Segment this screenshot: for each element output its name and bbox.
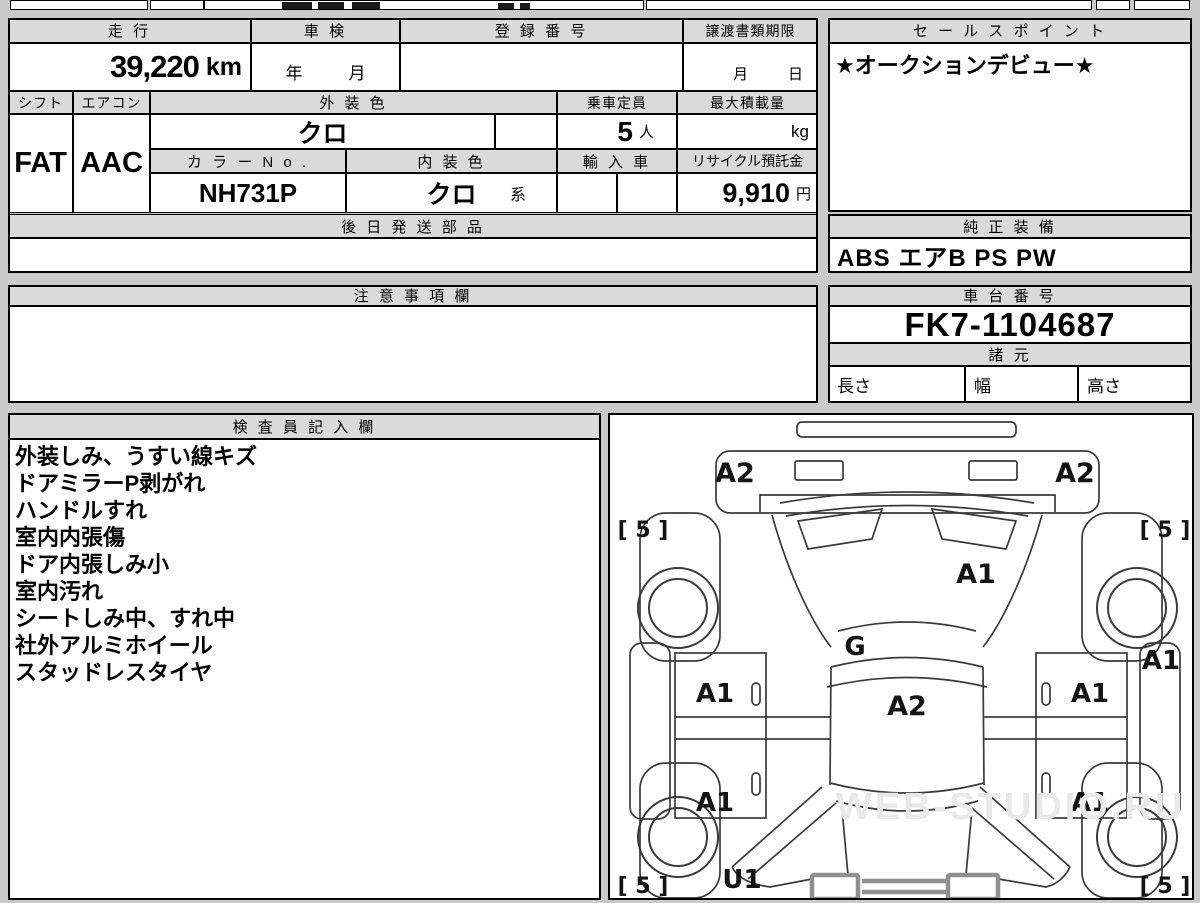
inspector-note: 外装しみ、うすい線キズ <box>15 443 594 470</box>
sales-point-header: セ ー ル ス ポ イ ン ト <box>828 18 1192 43</box>
inspector-note: シートしみ中、すれ中 <box>15 605 594 632</box>
cautions-header-label: 注 意 事 項 欄 <box>354 285 473 306</box>
diagram-label-door-rear-left: A1 <box>696 788 734 818</box>
inspector-note: ドア内張しみ小 <box>15 551 594 578</box>
windshield-left <box>798 509 882 549</box>
door-handle <box>752 683 760 705</box>
inspection-header-label: 車 検 <box>304 20 347 41</box>
exterior-color-value-cell: クロ <box>150 114 495 149</box>
inspector-note: 室内汚れ <box>15 578 594 605</box>
genuine-equipment-header-label: 純 正 装 備 <box>963 216 1057 237</box>
shift-header-label: シフト <box>18 93 63 113</box>
import-value-cell-b <box>617 173 677 213</box>
inspector-notes-body: 外装しみ、うすい線キズ ドアミラーP剥がれ ハンドルすれ 室内内張傷 ドア内張し… <box>8 439 601 900</box>
transfer-month-label: 月 <box>733 63 748 84</box>
rear-lamp-right <box>948 875 998 898</box>
door-handle <box>1042 683 1050 705</box>
cropped-text-remnant <box>318 2 344 9</box>
capacity-header-label: 乗車定員 <box>587 93 647 113</box>
diagram-label-tire-front-right: [ 5 ] <box>1140 518 1191 543</box>
max-load-header: 最大積載量 <box>677 91 818 114</box>
inspection-year-label: 年 <box>286 59 303 84</box>
genuine-equipment-header: 純 正 装 備 <box>828 214 1192 238</box>
windshield-right <box>932 509 1016 549</box>
inspector-note: ドアミラーP剥がれ <box>15 470 594 497</box>
shift-value: FAT <box>14 147 67 180</box>
front-lamp-right <box>969 461 1017 480</box>
cropped-row-cell <box>10 0 148 10</box>
sill-left <box>630 643 670 819</box>
inspector-note: スタッドレスタイヤ <box>15 659 594 686</box>
mileage-value: 39,220 <box>110 49 199 85</box>
front-bumper-strip <box>797 422 1016 437</box>
diagram-label-tire-rear-left: [ 5 ] <box>618 874 669 898</box>
front-lamp-left <box>795 461 843 480</box>
exterior-color-header-label: 外 装 色 <box>319 92 387 113</box>
cropped-text-remnant <box>520 3 530 9</box>
mileage-header-label: 走 行 <box>108 20 151 41</box>
recycle-fee-value-cell: 9,910 円 <box>677 173 818 213</box>
inspector-notes-header-label: 検 査 員 記 入 欄 <box>233 416 377 437</box>
spec-length-cell: 長さ <box>828 366 965 403</box>
exterior-color-header: 外 装 色 <box>150 91 557 114</box>
capacity-value: 5 <box>617 116 633 148</box>
inspection-month-label: 月 <box>349 59 366 84</box>
inspector-note: 室内内張傷 <box>15 524 594 551</box>
sales-point-header-label: セ ー ル ス ポ イ ン ト <box>913 20 1107 41</box>
import-value-cell-a <box>557 173 617 213</box>
sales-point-value: ★オークションデビュー★ <box>835 53 1094 78</box>
mileage-unit: km <box>206 53 242 82</box>
front-bumper <box>716 451 1099 513</box>
recycle-fee-header-label: リサイクル預託金 <box>692 151 803 171</box>
genuine-equipment-value: ABS エアB PS PW <box>837 238 1057 273</box>
inspection-header: 車 検 <box>251 18 400 43</box>
color-no-header-label: カ ラ ー N o . <box>187 151 309 172</box>
aircon-value-cell: AAC <box>73 114 150 213</box>
aircon-header-label: エアコン <box>82 93 142 113</box>
spec-height-cell: 高さ <box>1078 366 1192 403</box>
specs-header-label: 諸 元 <box>988 344 1031 365</box>
diagram-label-door-front-right: A1 <box>1071 679 1109 709</box>
interior-color-suffix: 系 <box>510 181 526 205</box>
diagram-label-hood: A1 <box>956 559 996 590</box>
car-diagram-panel: A2 A2 [ 5 ] [ 5 ] A1 G A1 A2 A1 A1 A1 A1… <box>608 413 1194 900</box>
diagram-label-door-rear-right: A1 <box>1071 788 1109 818</box>
diagram-label-bumper-front-right: A2 <box>1055 458 1095 489</box>
rear-lamp-left <box>812 875 858 898</box>
color-no-value-cell: NH731P <box>150 173 346 213</box>
door-handle <box>752 773 760 795</box>
inspector-note: ハンドルすれ <box>15 497 594 524</box>
recycle-fee-value: 9,910 <box>722 178 790 209</box>
cropped-text-remnant <box>498 3 514 9</box>
diagram-label-bumper-front-left: A2 <box>715 458 755 489</box>
shift-value-cell: FAT <box>8 114 73 213</box>
cropped-row-cell <box>1096 0 1130 10</box>
cropped-row-cell <box>646 0 1092 10</box>
cropped-text-remnant <box>352 2 380 9</box>
later-parts-value-cell <box>8 238 818 273</box>
diagram-label-tire-rear-right: [ 5 ] <box>1140 874 1191 898</box>
diagram-label-side-right: A1 <box>1142 646 1180 676</box>
interior-color-value: クロ <box>426 175 476 211</box>
transfer-docs-value-cell: 月 日 <box>683 43 818 91</box>
inspector-notes-header: 検 査 員 記 入 欄 <box>8 413 601 439</box>
inspector-note: 社外アルミホイール <box>15 632 594 659</box>
capacity-header: 乗車定員 <box>557 91 677 114</box>
cautions-header: 注 意 事 項 欄 <box>8 285 818 306</box>
transfer-docs-header: 譲渡書類期限 <box>683 18 818 43</box>
aircon-header: エアコン <box>73 91 150 114</box>
mileage-header: 走 行 <box>8 18 251 43</box>
diagram-label-roof: A2 <box>887 691 927 722</box>
max-load-unit: kg <box>791 122 809 142</box>
registration-value-cell <box>400 43 683 91</box>
recycle-fee-header: リサイクル預託金 <box>677 149 818 173</box>
import-header: 輸 入 車 <box>557 149 677 173</box>
later-parts-header: 後 日 発 送 部 品 <box>8 214 818 238</box>
diagram-label-tire-front-left: [ 5 ] <box>618 518 669 543</box>
interior-color-value-cell: クロ 系 <box>346 173 557 213</box>
max-load-header-label: 最大積載量 <box>710 93 785 113</box>
cautions-value-cell <box>8 306 818 403</box>
chassis-number-value: FK7-1104687 <box>905 306 1116 344</box>
spec-height-label: 高さ <box>1087 372 1121 397</box>
shift-header: シフト <box>8 91 73 114</box>
recycle-fee-unit: 円 <box>796 183 811 204</box>
spec-length-label: 長さ <box>837 372 871 397</box>
genuine-equipment-value-cell: ABS エアB PS PW <box>828 238 1192 273</box>
import-header-label: 輸 入 車 <box>583 151 651 172</box>
chassis-number-header-label: 車 台 番 号 <box>963 285 1057 306</box>
interior-color-header-label: 内 装 色 <box>417 151 485 172</box>
color-no-header: カ ラ ー N o . <box>150 149 346 173</box>
bumper-inner-line <box>760 495 1055 512</box>
chassis-number-value-cell: FK7-1104687 <box>828 306 1192 343</box>
exterior-color-value: クロ <box>297 114 347 150</box>
spec-width-cell: 幅 <box>965 366 1078 403</box>
registration-header-label: 登 録 番 号 <box>495 20 589 41</box>
later-parts-header-label: 後 日 発 送 部 品 <box>341 216 485 237</box>
cropped-row-cell <box>204 0 644 10</box>
car-diagram: A2 A2 [ 5 ] [ 5 ] A1 G A1 A2 A1 A1 A1 A1… <box>610 415 1192 898</box>
door-handle <box>1042 773 1050 795</box>
cropped-row-cell <box>1134 0 1190 10</box>
diagram-label-door-front-left: A1 <box>696 679 734 709</box>
transfer-day-label: 日 <box>788 63 803 84</box>
registration-header: 登 録 番 号 <box>400 18 683 43</box>
exterior-color-sub-cell <box>495 114 557 149</box>
cropped-text-remnant <box>282 2 312 9</box>
sales-point-value-cell: ★オークションデビュー★ <box>828 43 1192 212</box>
capacity-unit: 人 <box>639 121 654 142</box>
color-no-value: NH731P <box>199 178 297 209</box>
spec-width-label: 幅 <box>974 372 991 397</box>
chassis-number-header: 車 台 番 号 <box>828 285 1192 306</box>
diagram-label-quarter-left: U1 <box>722 865 761 895</box>
interior-color-header: 内 装 色 <box>346 149 557 173</box>
mileage-value-cell: 39,220 km <box>8 43 251 91</box>
specs-header: 諸 元 <box>828 343 1192 366</box>
inspection-value-cell: 年 月 <box>251 43 400 91</box>
capacity-value-cell: 5 人 <box>557 114 677 149</box>
diagram-label-cowl: G <box>844 632 865 662</box>
max-load-value-cell: kg <box>677 114 818 149</box>
transfer-docs-header-label: 譲渡書類期限 <box>706 21 796 41</box>
auction-sheet: { "sheet": { "row1": { "mileage_label": … <box>0 0 1200 900</box>
aircon-value: AAC <box>80 147 143 180</box>
cropped-row-cell <box>150 0 204 10</box>
